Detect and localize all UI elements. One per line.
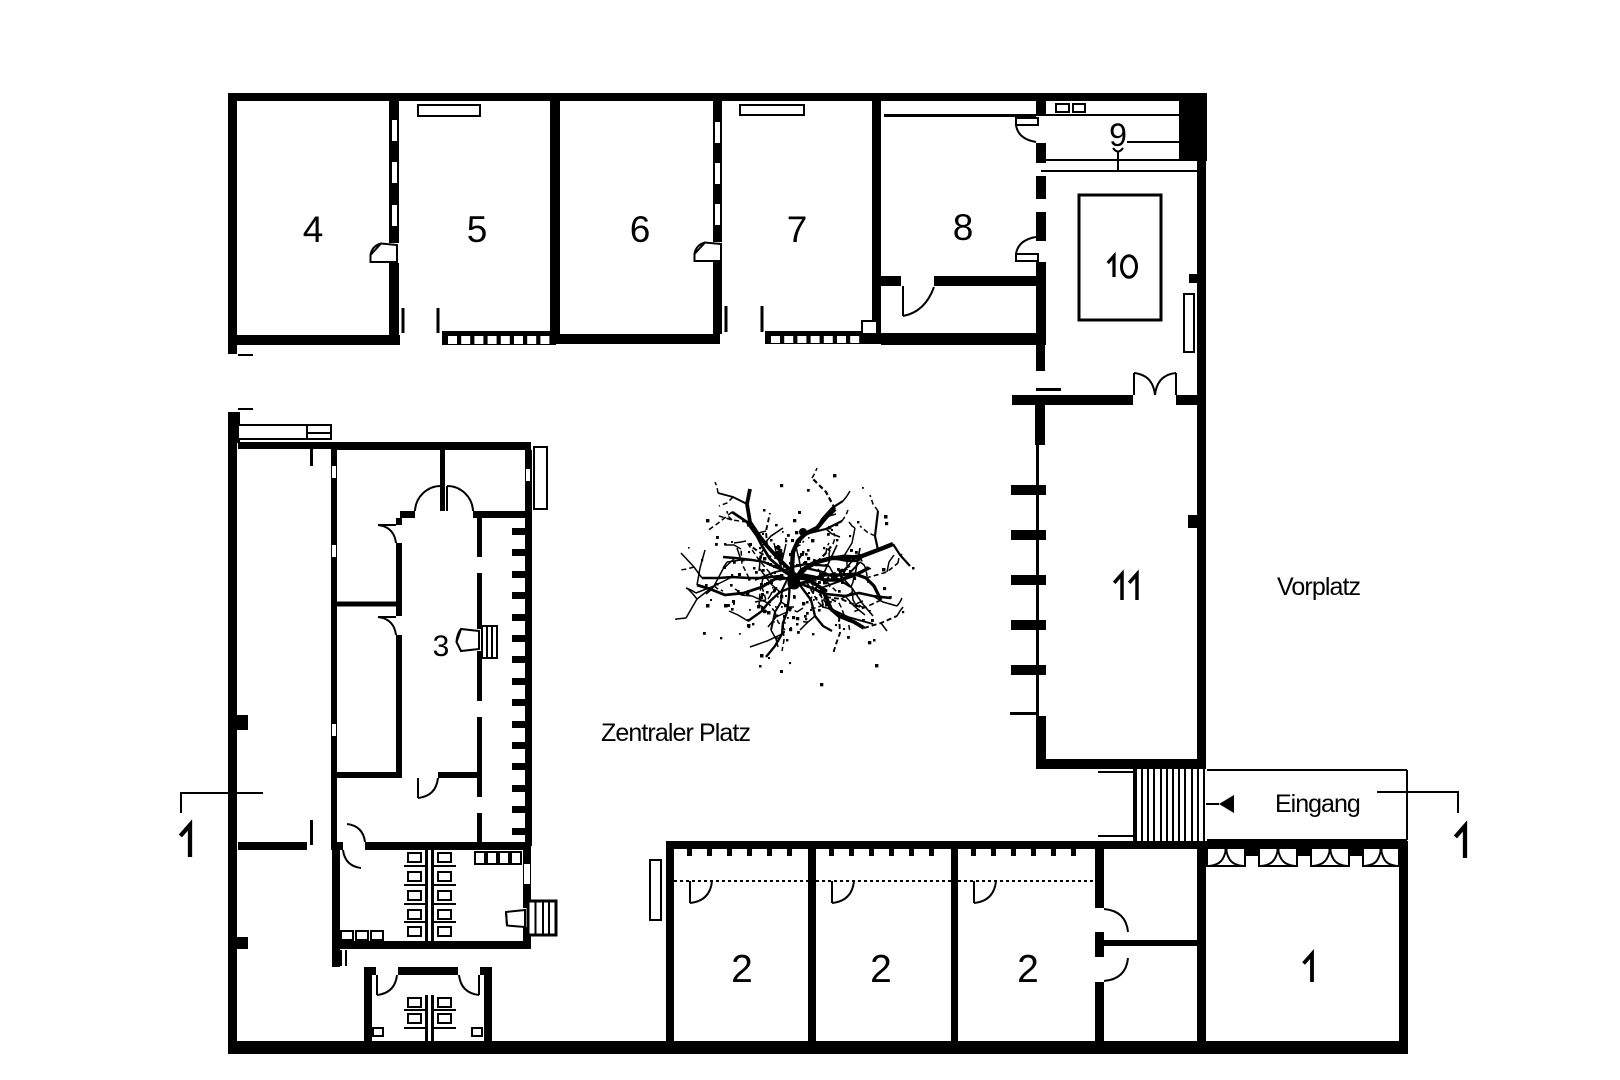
svg-text:5: 5 [467,209,488,250]
svg-text:3: 3 [433,630,450,663]
svg-text:7: 7 [787,209,808,250]
svg-text:Zentraler Platz: Zentraler Platz [601,719,750,747]
svg-text:2: 2 [731,948,753,991]
svg-text:2: 2 [1017,948,1039,991]
svg-text:9: 9 [1109,117,1127,153]
svg-text:Vorplatz: Vorplatz [1277,573,1361,601]
svg-text:4: 4 [303,209,324,250]
svg-text:6: 6 [630,209,651,250]
svg-text:Eingang: Eingang [1275,790,1360,818]
svg-text:2: 2 [870,948,892,991]
svg-text:8: 8 [953,207,974,248]
